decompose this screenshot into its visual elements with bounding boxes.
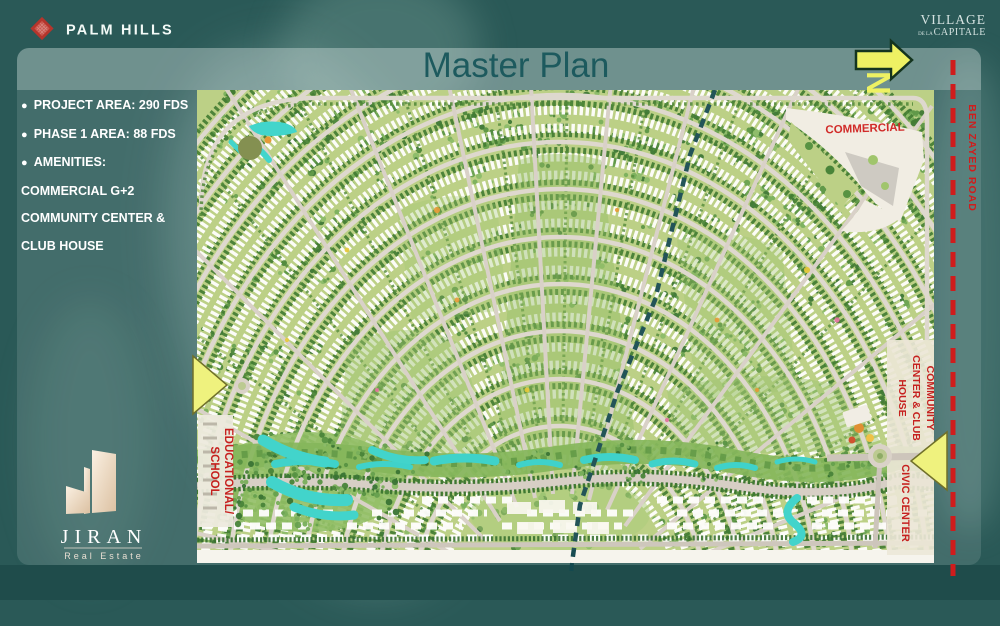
svg-text:Real Estate: Real Estate	[64, 551, 144, 561]
svg-text:BEN ZAYED ROAD: BEN ZAYED ROAD	[966, 104, 978, 212]
svg-text:N: N	[860, 71, 897, 95]
svg-text:JIRAN: JIRAN	[61, 526, 148, 548]
